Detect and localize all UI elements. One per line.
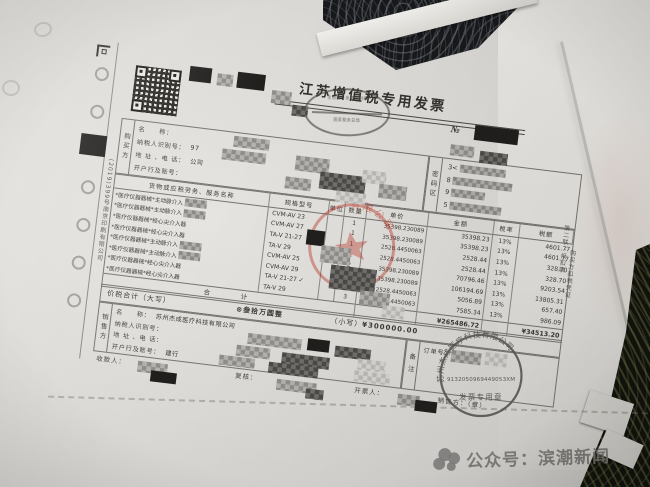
censor-block [189,66,213,84]
censor-block [362,170,387,186]
paper-mark-circle [2,80,20,96]
buyer-row-value: 公司 [190,157,204,168]
censor-block [306,229,326,246]
vat-invoice: (2019)399号南京印刷有限公司 江苏增值税专用发票 全国统一发票监制章 国… [55,40,596,425]
watermark-logo-icon [432,446,463,473]
reviewer-label: 复核： [235,370,259,383]
monitor-stamp-text: 国家税务总局 [306,116,388,125]
invoice-seal-stamp: 苏州杰成医疗科技有限公司 9132050969449053XM 发票专用章 [435,330,527,422]
amount-small-label: （小写） [330,316,363,330]
qr-code [131,65,182,116]
password-char: 8 [446,176,451,184]
punch-hole [80,179,96,195]
registration-mark-icon [96,44,110,57]
serial-number-label: № [450,124,460,136]
censor-block [291,105,308,118]
censor-block [484,352,507,368]
password-char: 5 [443,200,448,208]
paper-mark-circle [33,20,54,38]
censor-block [459,165,506,179]
censor-block [79,133,107,157]
buyer-row-label: 纳税人识别号： [136,137,186,152]
censor-block [216,73,233,87]
seller-row-value: 建行 [165,348,179,359]
monitor-stamp-text: 全国统一发票监制章 [306,94,388,103]
punch-hole [66,293,82,309]
censor-block [320,245,352,266]
buyer-row-label: 地 址 、电 话： [135,150,186,165]
censor-block [381,305,404,320]
buyer-row-label: 开户行及账号： [133,163,183,178]
censor-block [449,201,502,215]
punch-hole [89,104,105,120]
buyer-row-label: 名 称： [138,124,174,137]
amount-small-value: ¥300000.00 [362,321,419,336]
censor-block [307,338,330,353]
seal-code-text: 9132050969449053XM [447,377,515,383]
password-char: 3< [448,163,458,172]
censor-block [150,370,177,384]
buyer-row-value: 97 [190,144,200,152]
censor-block [414,400,437,414]
censor-block [305,388,324,400]
punch-hole [94,66,110,82]
censor-block [271,90,292,105]
password-char: 9 [445,188,450,196]
seal-caption-text: 发票专用章 [459,392,503,401]
punch-hole [76,217,92,233]
photo-of-invoice: (2019)399号南京印刷有限公司 江苏增值税专用发票 全国统一发票监制章 国… [0,0,650,487]
censor-block [451,189,486,201]
amount-in-words: ⊗叁拾万圆整 [236,304,284,320]
censor-block [450,144,475,158]
punch-hole [71,255,87,271]
watermark-text: 公众号：滨潮新闻 [466,441,611,471]
censor-block [236,72,266,91]
